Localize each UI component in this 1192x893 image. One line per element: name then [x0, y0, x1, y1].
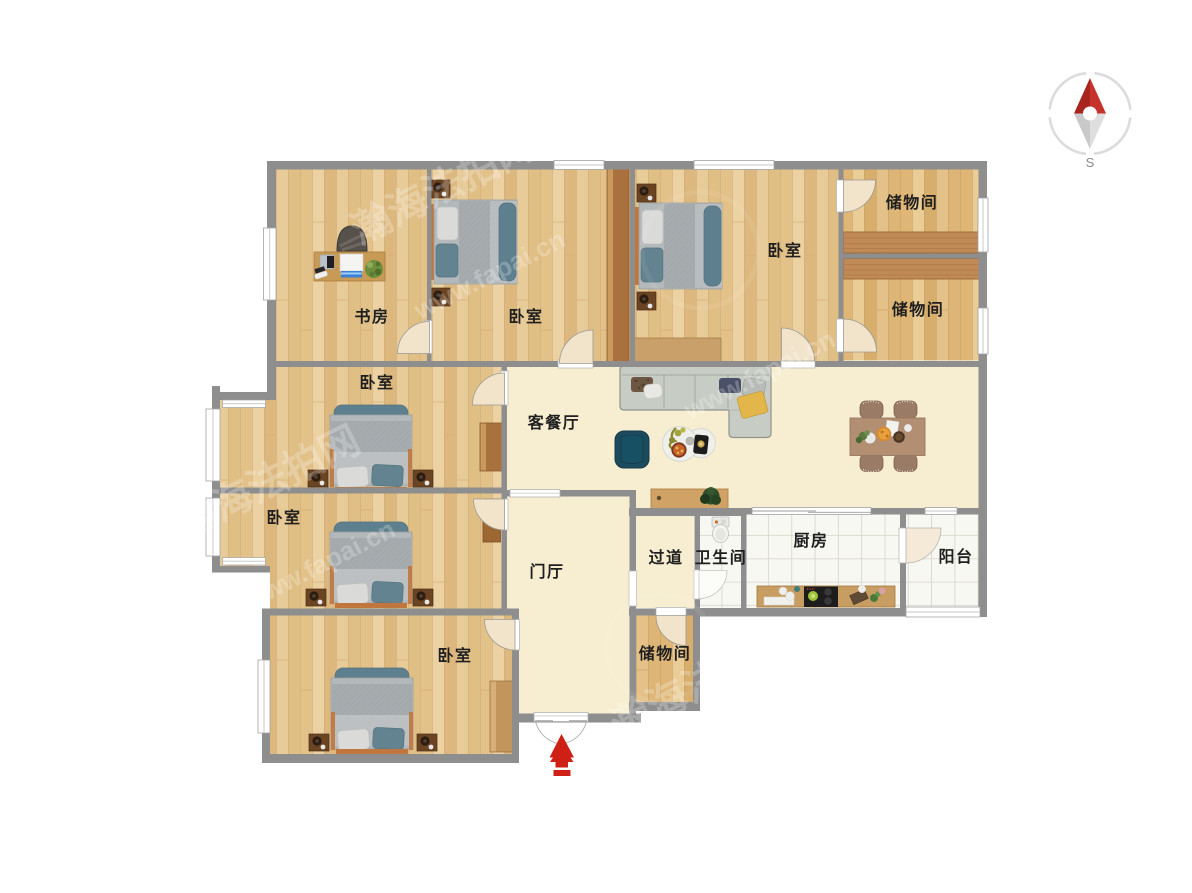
svg-text:门厅: 门厅: [529, 562, 564, 581]
svg-text:S: S: [1086, 155, 1095, 170]
svg-text:书房: 书房: [354, 307, 389, 326]
svg-text:卧室: 卧室: [266, 508, 301, 527]
svg-text:卧室: 卧室: [767, 241, 802, 260]
svg-text:储物间: 储物间: [885, 193, 939, 212]
svg-text:厨房: 厨房: [793, 531, 828, 550]
svg-text:卧室: 卧室: [508, 307, 543, 326]
svg-text:卧室: 卧室: [359, 373, 394, 392]
svg-text:卫生间: 卫生间: [695, 548, 748, 567]
svg-text:储物间: 储物间: [891, 300, 945, 319]
svg-text:客餐厅: 客餐厅: [528, 413, 581, 432]
svg-text:卧室: 卧室: [437, 646, 472, 665]
svg-text:储物间: 储物间: [638, 644, 692, 663]
svg-text:过道: 过道: [648, 548, 683, 567]
svg-text:阳台: 阳台: [938, 547, 973, 566]
